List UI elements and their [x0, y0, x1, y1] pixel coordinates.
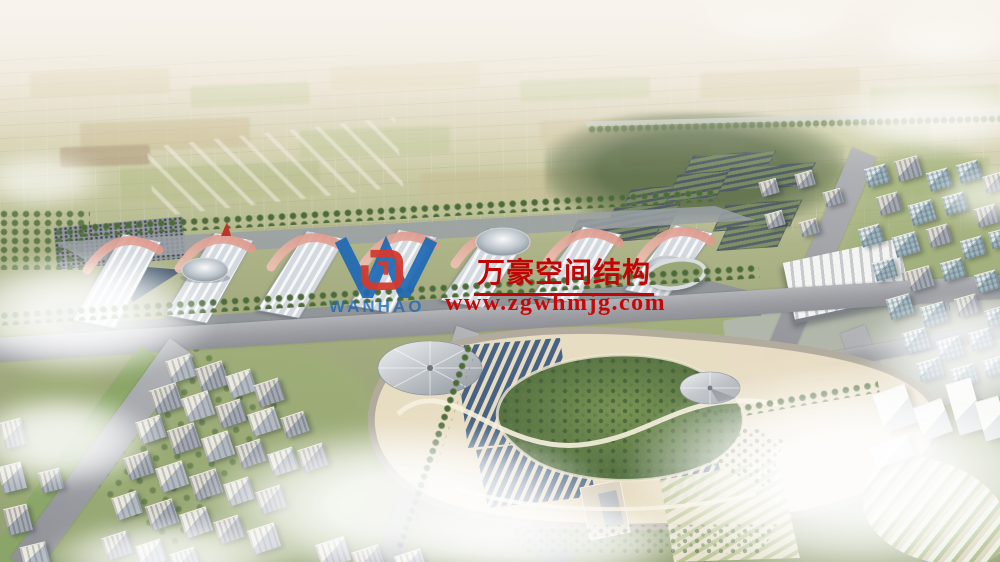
- field-patch: [190, 82, 311, 108]
- field-patch: [30, 68, 171, 99]
- watermark-logo-wordmark: WANHAO: [329, 297, 424, 317]
- wanhao-logo-emblem-icon: [356, 246, 408, 294]
- cloud: [690, 0, 860, 50]
- watermark-url: www.zgwhmjg.com: [445, 290, 666, 317]
- field-patch: [520, 76, 651, 103]
- aerial-render-scene: WANHAO 万豪空间结构 www.zgwhmjg.com: [0, 0, 1000, 562]
